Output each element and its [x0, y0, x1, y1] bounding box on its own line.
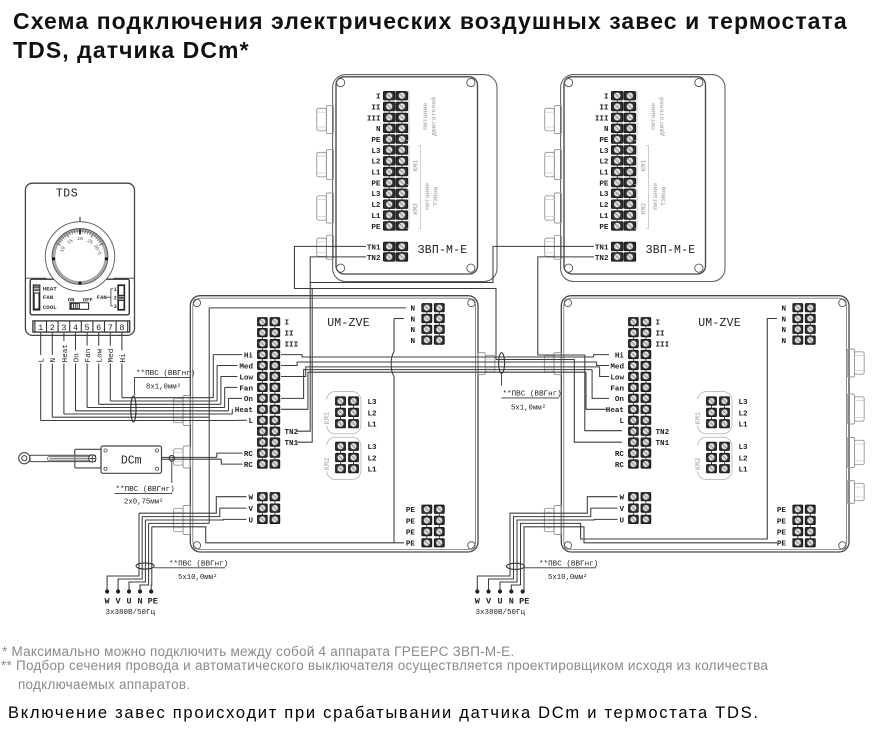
- svg-text:N: N: [410, 306, 415, 314]
- svg-text:Hi: Hi: [615, 352, 625, 360]
- svg-text:L2: L2: [368, 455, 378, 463]
- svg-text:V: V: [248, 506, 253, 514]
- svg-text:W: W: [475, 597, 481, 607]
- svg-text:Med: Med: [239, 363, 253, 371]
- svg-text:III: III: [285, 342, 299, 350]
- svg-text:TN2: TN2: [595, 255, 609, 263]
- svg-text:TN2: TN2: [367, 255, 381, 263]
- svg-text:On: On: [244, 396, 254, 404]
- svg-text:PE: PE: [371, 224, 381, 232]
- svg-text:L1: L1: [739, 422, 749, 430]
- svg-text:L3: L3: [368, 399, 378, 407]
- svg-text:Low: Low: [239, 374, 253, 382]
- svg-text:КМ1: КМ1: [324, 412, 332, 425]
- svg-text:Fan: Fan: [85, 349, 93, 363]
- svg-text:PE: PE: [599, 180, 609, 188]
- svg-text:PE: PE: [148, 597, 158, 607]
- svg-text:N: N: [781, 338, 786, 346]
- svg-text:20: 20: [77, 236, 83, 242]
- svg-text:Med: Med: [610, 363, 624, 371]
- svg-text:Low: Low: [97, 348, 105, 362]
- svg-text:COOL: COOL: [43, 304, 57, 311]
- svg-text:III: III: [595, 115, 609, 123]
- svg-text:L3: L3: [739, 444, 749, 452]
- svg-text:W: W: [248, 495, 253, 503]
- svg-text:PE: PE: [519, 597, 529, 607]
- svg-text:Heat: Heat: [235, 407, 253, 415]
- svg-text:КМ1: КМ1: [695, 412, 703, 425]
- svg-text:Hi: Hi: [244, 352, 254, 360]
- svg-text:питание: питание: [652, 183, 659, 210]
- svg-text:L3: L3: [599, 191, 609, 199]
- svg-text:I: I: [285, 320, 290, 328]
- svg-text:I: I: [376, 94, 381, 102]
- svg-text:N: N: [781, 327, 786, 335]
- svg-text:3: 3: [61, 323, 66, 333]
- svg-text:L2: L2: [371, 159, 381, 167]
- svg-text:RC: RC: [615, 462, 625, 470]
- svg-text:L1: L1: [599, 170, 609, 178]
- svg-text:II: II: [656, 331, 665, 339]
- svg-text:L1: L1: [599, 213, 609, 221]
- svg-text:**ПВС (ВВГнг): **ПВС (ВВГнг): [539, 560, 598, 568]
- svg-text:PE: PE: [406, 518, 416, 526]
- svg-text:5x1,0мм²: 5x1,0мм²: [511, 403, 546, 412]
- svg-text:TN2: TN2: [656, 429, 670, 437]
- svg-text:2: 2: [114, 295, 117, 301]
- svg-text:U: U: [619, 517, 624, 525]
- svg-text:TN2: TN2: [285, 429, 299, 437]
- svg-text:ЗВП-М-Е: ЗВП-М-Е: [646, 244, 696, 257]
- svg-text:N: N: [781, 306, 786, 314]
- svg-text:U: U: [248, 517, 253, 525]
- svg-text:OFF: OFF: [83, 296, 93, 303]
- svg-text:V: V: [116, 597, 122, 607]
- svg-text:N: N: [410, 338, 415, 346]
- svg-text:питание: питание: [422, 103, 429, 130]
- svg-text:PE: PE: [777, 507, 787, 515]
- svg-text:Med: Med: [108, 349, 116, 363]
- svg-text:U: U: [126, 597, 131, 607]
- svg-text:6: 6: [96, 323, 101, 333]
- svg-text:V: V: [619, 506, 624, 514]
- svg-text:On: On: [73, 353, 81, 362]
- svg-text:двигателей: двигателей: [658, 97, 666, 136]
- svg-text:L3: L3: [371, 191, 381, 199]
- svg-text:UM-ZVE: UM-ZVE: [698, 317, 741, 330]
- svg-text:I: I: [604, 94, 609, 102]
- svg-text:TN1: TN1: [367, 244, 381, 252]
- svg-text:Fan: Fan: [239, 385, 253, 393]
- svg-text:L3: L3: [368, 444, 378, 452]
- svg-text:L: L: [619, 418, 624, 426]
- svg-text:N: N: [376, 126, 381, 134]
- svg-text:UM-ZVE: UM-ZVE: [327, 317, 370, 330]
- svg-text:PE: PE: [599, 224, 609, 232]
- svg-text:2: 2: [50, 323, 55, 333]
- svg-text:5x10,0мм²: 5x10,0мм²: [178, 573, 217, 582]
- svg-text:PE: PE: [777, 541, 787, 549]
- svg-text:КМ2: КМ2: [641, 203, 648, 215]
- svg-text:N: N: [50, 358, 58, 363]
- svg-text:L2: L2: [739, 455, 749, 463]
- svg-text:Hi: Hi: [120, 353, 128, 363]
- svg-text:N: N: [509, 597, 514, 607]
- svg-text:N: N: [137, 597, 142, 607]
- svg-text:ТЭНов: ТЭНов: [661, 186, 668, 206]
- svg-text:N: N: [410, 316, 415, 324]
- svg-text:питание: питание: [650, 103, 657, 130]
- svg-text:**ПВС (ВВГнг): **ПВС (ВВГнг): [169, 560, 228, 568]
- svg-text:II: II: [285, 331, 294, 339]
- svg-text:8x1,0мм²: 8x1,0мм²: [146, 383, 181, 392]
- svg-text:W: W: [105, 597, 111, 607]
- svg-text:L1: L1: [371, 170, 381, 178]
- svg-text:L1: L1: [368, 467, 378, 475]
- svg-text:Heat: Heat: [62, 344, 70, 362]
- svg-text:TDS: TDS: [56, 188, 78, 201]
- svg-text:1: 1: [114, 287, 117, 293]
- svg-text:L1: L1: [739, 467, 749, 475]
- svg-text:L2: L2: [599, 159, 609, 167]
- svg-text:PE: PE: [406, 507, 416, 515]
- svg-text:W: W: [619, 495, 624, 503]
- svg-text:L2: L2: [368, 410, 378, 418]
- svg-text:PE: PE: [777, 530, 787, 538]
- svg-text:5: 5: [85, 323, 90, 333]
- svg-text:L2: L2: [739, 410, 749, 418]
- svg-text:FAN: FAN: [43, 294, 54, 301]
- svg-text:L3: L3: [739, 399, 749, 407]
- svg-text:On: On: [615, 396, 625, 404]
- svg-text:ON: ON: [68, 296, 75, 303]
- svg-text:Fan: Fan: [610, 385, 624, 393]
- svg-text:Heat: Heat: [606, 407, 624, 415]
- svg-text:TN1: TN1: [595, 244, 609, 252]
- svg-text:DCm: DCm: [121, 454, 142, 467]
- svg-text:3x380В/50Гц: 3x380В/50Гц: [106, 609, 156, 617]
- svg-text:RC: RC: [615, 451, 625, 459]
- svg-text:ТЭНов: ТЭНов: [433, 186, 440, 206]
- svg-text:КМ2: КМ2: [413, 203, 420, 215]
- svg-text:L3: L3: [371, 148, 381, 156]
- svg-text:FAN: FAN: [97, 294, 107, 301]
- svg-text:питание: питание: [424, 183, 431, 210]
- svg-text:L1: L1: [368, 422, 378, 430]
- svg-text:5x10,0мм²: 5x10,0мм²: [548, 573, 587, 582]
- svg-text:RC: RC: [244, 462, 254, 470]
- svg-text:КМ2: КМ2: [695, 458, 703, 471]
- svg-text:I: I: [656, 320, 661, 328]
- svg-text:PE: PE: [777, 518, 787, 526]
- svg-text:Low: Low: [610, 374, 624, 382]
- svg-text:N: N: [781, 316, 786, 324]
- svg-text:КМ1: КМ1: [413, 160, 420, 172]
- svg-text:3: 3: [114, 304, 117, 310]
- svg-text:ЗВП-М-Е: ЗВП-М-Е: [418, 244, 468, 257]
- svg-text:PE: PE: [599, 137, 609, 145]
- svg-text:КМ1: КМ1: [641, 160, 648, 172]
- svg-text:L: L: [39, 358, 47, 363]
- svg-text:PE: PE: [406, 541, 416, 549]
- svg-text:1: 1: [38, 323, 43, 333]
- svg-text:RC: RC: [244, 451, 254, 459]
- svg-text:4: 4: [73, 323, 78, 333]
- svg-text:L2: L2: [371, 202, 381, 210]
- svg-text:TN1: TN1: [285, 440, 299, 448]
- svg-text:3x380В/50Гц: 3x380В/50Гц: [476, 609, 526, 617]
- svg-text:V: V: [486, 597, 492, 607]
- svg-text:**ПВС (ВВГнг): **ПВС (ВВГнг): [136, 370, 195, 378]
- svg-text:N: N: [604, 126, 609, 134]
- svg-text:III: III: [656, 342, 670, 350]
- svg-text:TN1: TN1: [656, 440, 670, 448]
- svg-text:II: II: [371, 105, 380, 113]
- svg-text:PE: PE: [371, 180, 381, 188]
- svg-text:КМ2: КМ2: [324, 458, 332, 471]
- svg-text:PE: PE: [371, 137, 381, 145]
- svg-text:2x0,75мм²: 2x0,75мм²: [124, 498, 163, 507]
- svg-text:L1: L1: [371, 213, 381, 221]
- svg-text:III: III: [367, 115, 381, 123]
- svg-text:L3: L3: [599, 148, 609, 156]
- svg-text:7: 7: [108, 323, 113, 333]
- svg-text:II: II: [599, 105, 608, 113]
- svg-text:PE: PE: [406, 530, 416, 538]
- svg-text:L: L: [248, 418, 253, 426]
- svg-text:**ПВС (ВВГнг): **ПВС (ВВГнг): [116, 486, 175, 494]
- svg-text:HEAT: HEAT: [43, 286, 57, 293]
- svg-text:**ПВС (ВВГнг): **ПВС (ВВГнг): [503, 390, 562, 398]
- svg-text:двигателей: двигателей: [430, 97, 438, 136]
- svg-text:8: 8: [119, 323, 124, 333]
- svg-text:L2: L2: [599, 202, 609, 210]
- svg-text:U: U: [497, 597, 502, 607]
- svg-text:N: N: [410, 327, 415, 335]
